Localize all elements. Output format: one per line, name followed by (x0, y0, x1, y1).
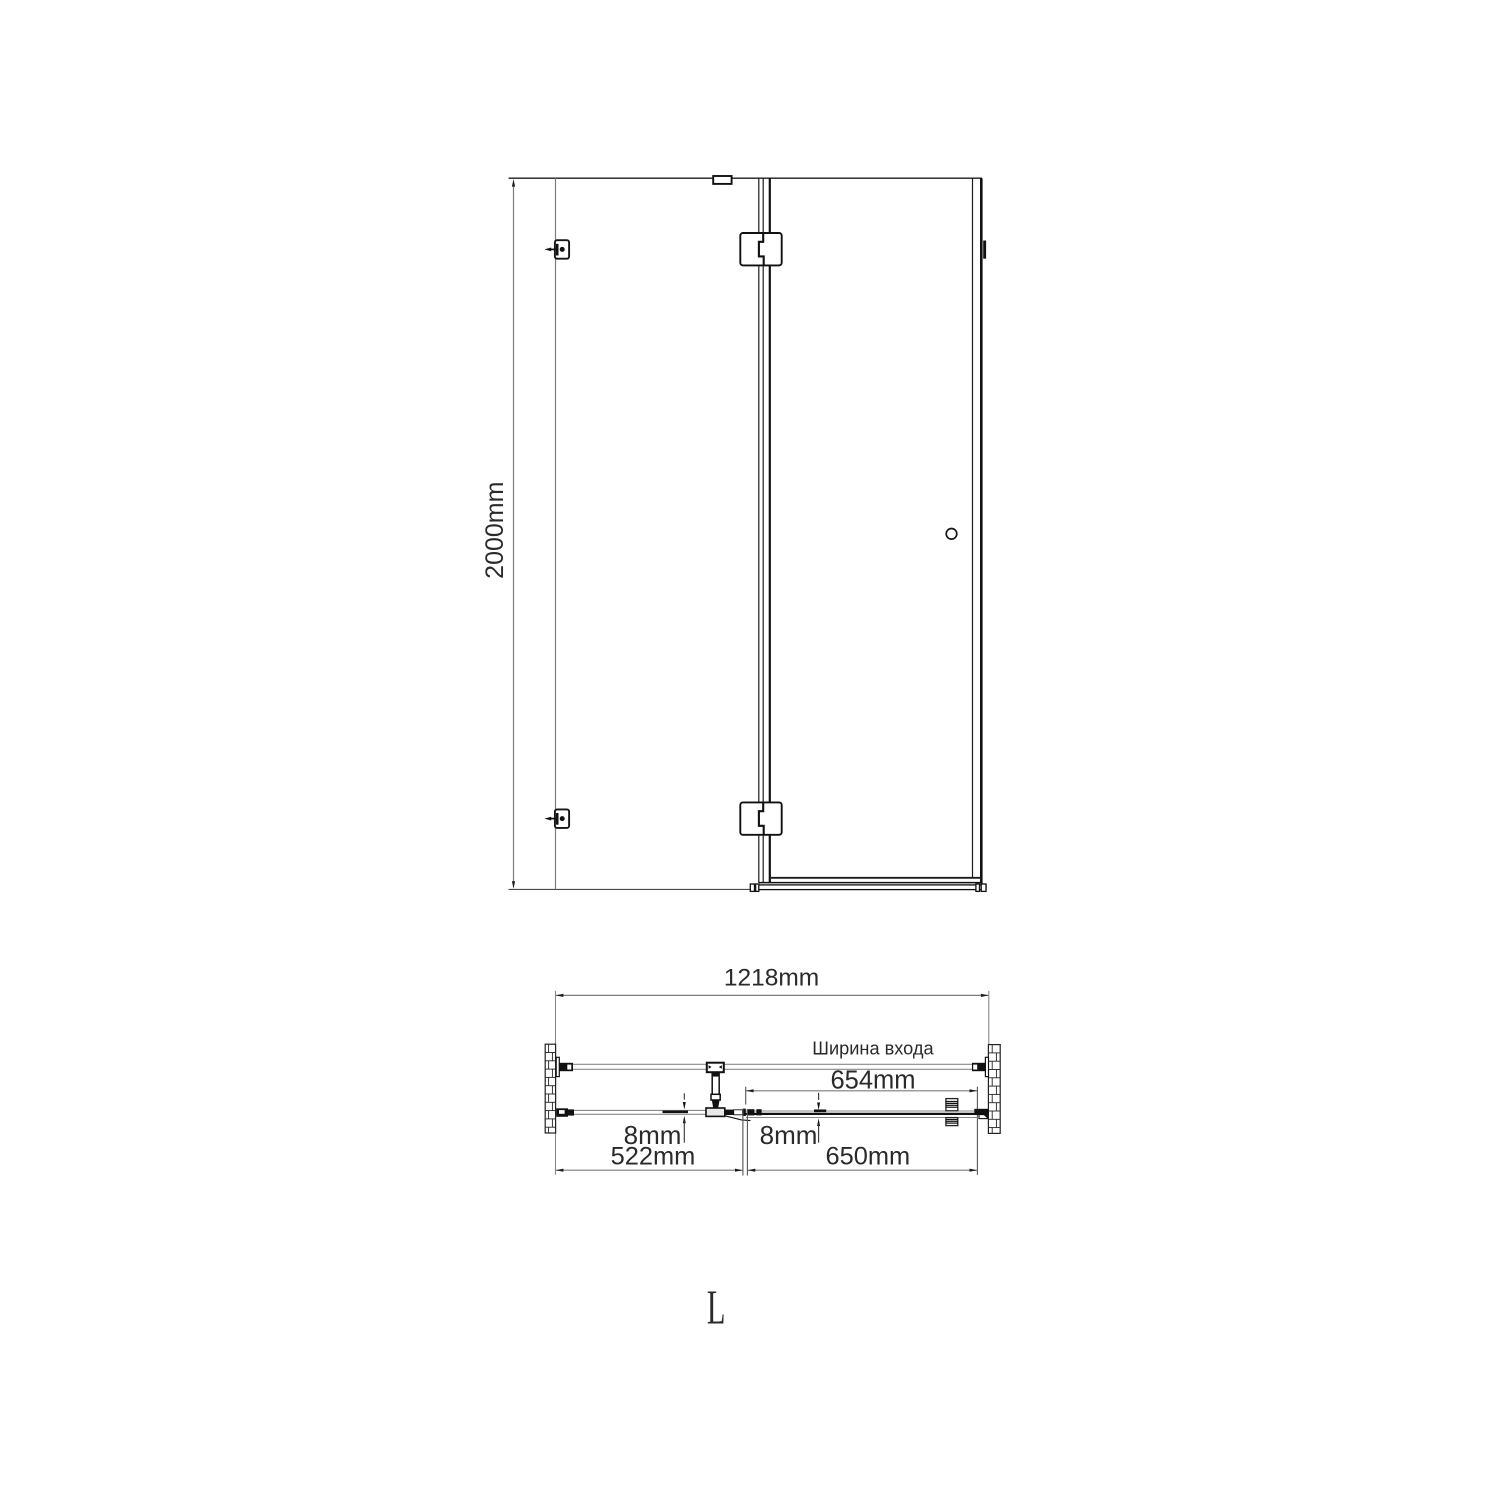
svg-text:8mm: 8mm (760, 1120, 818, 1150)
svg-text:650mm: 650mm (825, 1142, 910, 1170)
svg-text:522mm: 522mm (611, 1142, 696, 1170)
svg-text:1218mm: 1218mm (724, 965, 819, 992)
svg-text:L: L (707, 1280, 726, 1334)
svg-text:Ширина входа: Ширина входа (812, 1039, 934, 1059)
svg-text:2000mm: 2000mm (481, 482, 509, 579)
